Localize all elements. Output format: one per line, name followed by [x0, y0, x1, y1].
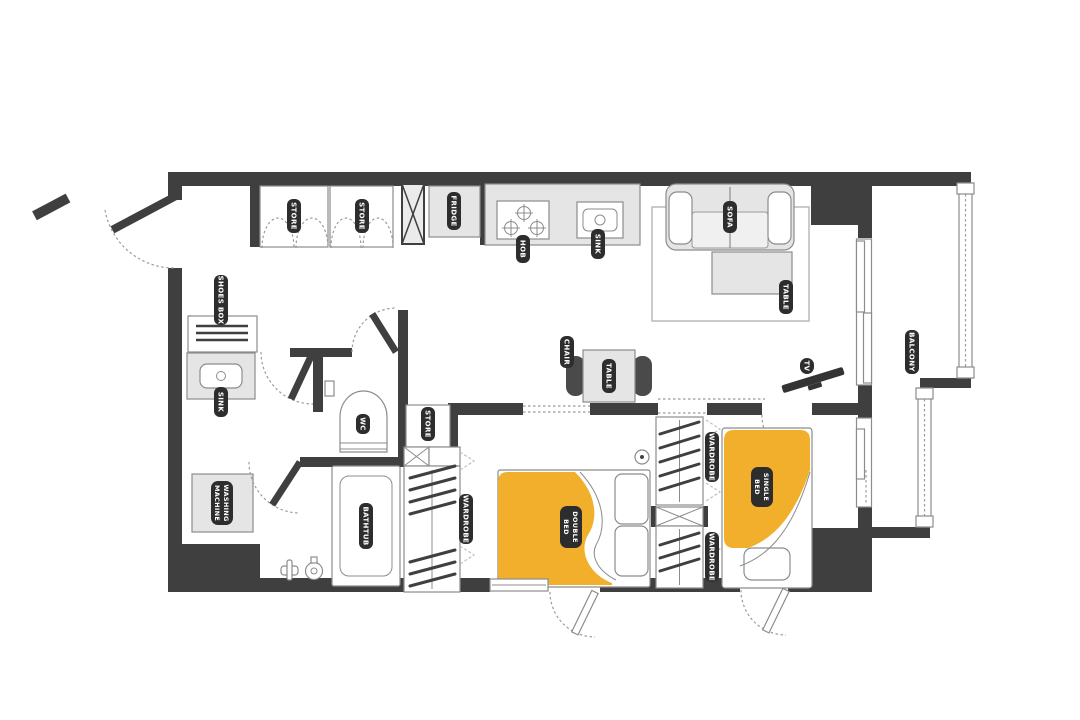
tv — [781, 367, 846, 398]
french-door-1 — [550, 590, 598, 637]
label-chair: CHAIR — [560, 336, 574, 368]
label-bathroom-sink: SINK — [214, 387, 228, 417]
svg-text:TV: TV — [803, 361, 811, 372]
label-double-bed: DOUBLEBED — [560, 506, 582, 548]
label-sofa: SOFA — [723, 201, 737, 233]
svg-text:WC: WC — [359, 417, 367, 431]
svg-text:BED: BED — [562, 519, 570, 535]
label-coffee-table: TABLE — [779, 280, 793, 314]
wc-door — [352, 308, 399, 354]
label-store-3: STORE — [421, 407, 435, 441]
label-bathtub: BATHTUB — [359, 503, 373, 549]
svg-text:SOFA: SOFA — [726, 206, 734, 228]
balcony-railing-lower — [916, 388, 933, 527]
label-kitchen-sink: SINK — [591, 229, 605, 259]
entrance-door — [105, 192, 178, 268]
french-door-2 — [741, 588, 789, 635]
svg-text:WARDROBE: WARDROBE — [708, 433, 716, 481]
svg-text:WARDROBE: WARDROBE — [708, 533, 716, 581]
balcony-railing-upper — [957, 183, 974, 378]
label-balcony: BALCONY — [905, 330, 919, 374]
svg-text:STORE: STORE — [290, 202, 298, 230]
svg-text:MACHINE: MACHINE — [213, 485, 221, 521]
svg-text:SINGLE: SINGLE — [762, 473, 770, 501]
svg-text:BATHTUB: BATHTUB — [362, 506, 370, 545]
svg-text:STORE: STORE — [424, 410, 432, 438]
bottom-window — [490, 579, 548, 591]
svg-text:SHOES BOX: SHOES BOX — [217, 276, 225, 325]
hob — [497, 201, 549, 239]
floor-plan: STORE STORE FRIDGE HOB SINK SOFA TABLE T… — [0, 0, 1080, 720]
label-wc: WC — [356, 414, 370, 434]
label-wardrobe-1: WARDROBE — [459, 494, 473, 544]
svg-text:TABLE: TABLE — [782, 284, 790, 310]
label-hob: HOB — [516, 235, 530, 263]
svg-text:WASHING: WASHING — [222, 484, 230, 521]
label-wardrobe-3: WARDROBE — [705, 532, 719, 582]
label-fridge: FRIDGE — [447, 192, 461, 230]
ceiling-sensor — [635, 450, 649, 464]
label-single-bed: SINGLEBED — [751, 467, 773, 507]
washarea-door — [261, 351, 316, 404]
toilet — [325, 381, 387, 452]
floor-plan-canvas: STORE STORE FRIDGE HOB SINK SOFA TABLE T… — [0, 0, 1080, 720]
svg-text:SINK: SINK — [594, 234, 602, 255]
svg-text:BED: BED — [753, 479, 761, 495]
svg-text:TABLE: TABLE — [605, 363, 613, 389]
svg-text:FRIDGE: FRIDGE — [450, 195, 458, 226]
single-bed — [722, 428, 812, 588]
svg-text:CHAIR: CHAIR — [563, 339, 571, 365]
bathroom-door — [249, 460, 303, 513]
svg-text:DOUBLE: DOUBLE — [571, 511, 579, 543]
bedroom-window — [857, 418, 872, 507]
label-store-2: STORE — [355, 199, 369, 233]
service-shaft — [402, 184, 424, 244]
shower-fixtures — [281, 557, 323, 580]
label-shoes-box: SHOES BOX — [214, 275, 228, 325]
label-dining-table: TABLE — [602, 359, 616, 393]
label-wardrobe-2: WARDROBE — [705, 432, 719, 482]
balcony-sliding-door — [857, 239, 872, 385]
label-store-1: STORE — [287, 199, 301, 233]
svg-text:STORE: STORE — [358, 202, 366, 230]
svg-text:SINK: SINK — [217, 392, 225, 413]
label-washing-machine: WASHINGMACHINE — [211, 481, 233, 525]
label-tv: TV — [800, 358, 814, 374]
svg-text:WARDROBE: WARDROBE — [462, 495, 470, 543]
svg-text:HOB: HOB — [519, 240, 527, 258]
svg-text:BALCONY: BALCONY — [908, 332, 916, 372]
